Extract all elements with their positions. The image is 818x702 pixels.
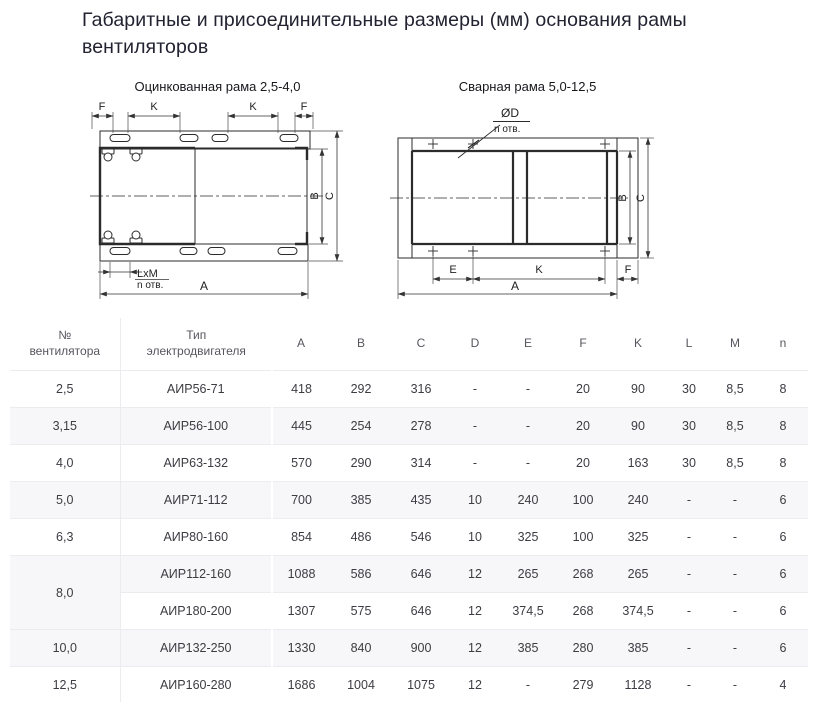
dimension-value-cell: 445 [272,408,330,445]
dimension-value-cell: 1686 [272,667,330,702]
dimension-value-cell: 12 [450,667,500,702]
bottom-flange [100,244,308,261]
fan-size-cell: 8,0 [10,556,120,630]
dimension-value-cell: 6 [758,519,808,556]
dimension-value-cell: 570 [272,445,330,482]
dimension-value-cell: 20 [556,445,610,482]
welded-frame-title: Сварная рама 5,0-12,5 [390,79,665,94]
dimension-value-cell: - [500,667,556,702]
dimension-value-cell: 12 [450,630,500,667]
dimension-value-cell: 30 [666,371,712,408]
hole-marks [428,139,610,256]
galvanized-frame-title: Оцинкованная рама 2,5-4,0 [85,79,350,94]
dimension-value-cell: 840 [330,630,392,667]
column-header: B [330,318,392,371]
motor-type-cell: АИР63-132 [120,445,272,482]
column-header: D [450,318,500,371]
dimension-value-cell: 646 [392,593,450,630]
dimension-value-cell: 1088 [272,556,330,593]
dimension-value-cell: 268 [556,593,610,630]
dimension-value-cell: 90 [610,408,666,445]
page-title: Габаритные и присоединительные размеры (… [82,7,782,61]
fan-size-cell: 3,15 [10,408,120,445]
column-header: F [556,318,610,371]
dimension-value-cell: 20 [556,371,610,408]
dimension-value-cell: 100 [556,519,610,556]
dimension-value-cell: 292 [330,371,392,408]
dimension-value-cell: 10 [450,482,500,519]
dimension-value-cell: 854 [272,519,330,556]
dim-label-f: F [625,264,632,276]
dimension-value-cell: 90 [610,371,666,408]
dimension-value-cell: 486 [330,519,392,556]
dimension-value-cell: 1004 [330,667,392,702]
welded-frame-drawing: ØD n отв. B C E K F [390,96,665,314]
slot-hole [110,248,130,255]
dimension-value-cell: 8 [758,371,808,408]
fan-size-cell: 4,0 [10,445,120,482]
dimension-value-cell: 240 [610,482,666,519]
dimension-value-cell: 385 [500,630,556,667]
motor-type-cell: АИР56-100 [120,408,272,445]
dim-label-f: F [301,101,308,113]
dim-label-a: A [511,279,519,293]
column-header: Тип электродвигателя [120,318,272,371]
dimension-value-cell: 6 [758,630,808,667]
dimension-value-cell: 163 [610,445,666,482]
top-flange [100,131,310,149]
dimension-value-cell: 374,5 [500,593,556,630]
dim-label-k: K [249,101,257,113]
dimension-value-cell: - [500,408,556,445]
dimension-value-cell: 8,5 [712,445,758,482]
table-row: 4,0АИР63-132570290314--20163308,58 [10,445,808,482]
column-header: № вентилятора [10,318,120,371]
slot-hole [180,135,198,142]
dimension-value-cell: 385 [330,482,392,519]
slot-hole [212,135,228,142]
dim-label-b: B [617,194,629,201]
dimension-value-cell: 435 [392,482,450,519]
dimension-value-cell: 279 [556,667,610,702]
dimension-value-cell: 546 [392,519,450,556]
dimension-value-cell: - [666,593,712,630]
motor-type-cell: АИР160-280 [120,667,272,702]
dimension-value-cell: - [666,630,712,667]
dimension-value-cell: 8,5 [712,408,758,445]
dimension-value-cell: 418 [272,371,330,408]
dim-label-a: A [200,279,208,293]
corner-mark [295,148,307,160]
column-header: L [666,318,712,371]
dimension-value-cell: 1307 [272,593,330,630]
table-row: 2,5АИР56-71418292316--2090308,58 [10,371,808,408]
dimension-value-cell: 265 [610,556,666,593]
dim-label-c: C [635,194,647,202]
column-header: A [272,318,330,371]
dimension-value-cell: 1128 [610,667,666,702]
dimension-value-cell: - [666,667,712,702]
slot-hole [180,248,197,255]
corner-mark [295,232,307,244]
table-row: 8,0АИР112-160108858664612265268265--6 [10,556,808,593]
dimension-value-cell: - [666,482,712,519]
dimension-value-cell: - [712,519,758,556]
dimension-value-cell: 20 [556,408,610,445]
dimension-value-cell: 314 [392,445,450,482]
dimension-value-cell: - [712,630,758,667]
dimension-value-cell: - [712,593,758,630]
dimension-value-cell: - [712,482,758,519]
dimension-value-cell: 4 [758,667,808,702]
dimension-value-cell: 254 [330,408,392,445]
frame-channels [412,151,617,244]
table-row: 10,0АИР132-250133084090012385280385--6 [10,630,808,667]
motor-type-cell: АИР56-71 [120,371,272,408]
dimension-value-cell: 575 [330,593,392,630]
dimension-value-cell: 646 [392,556,450,593]
slot-hole [278,248,297,255]
dimension-value-cell: 385 [610,630,666,667]
motor-type-cell: АИР71-112 [120,482,272,519]
dimension-value-cell: 10 [450,519,500,556]
dim-label-c: C [324,192,336,200]
table-header-row: № вентилятораТип электродвигателяABCDEFK… [10,318,808,371]
dimension-value-cell: 8 [758,408,808,445]
dim-label-n-holes: n отв. [494,124,520,135]
dimension-value-cell: 12 [450,593,500,630]
dimension-value-cell: 30 [666,408,712,445]
table-row: АИР180-200130757564612374,5268374,5--6 [10,593,808,630]
dimension-value-cell: 1075 [392,667,450,702]
column-header: n [758,318,808,371]
dimension-value-cell: 316 [392,371,450,408]
dim-label-diameter: ØD [501,106,519,120]
dimension-value-cell: - [450,445,500,482]
dimension-value-cell: - [450,408,500,445]
slot-hole [280,135,298,142]
dimensions-table: № вентилятораТип электродвигателяABCDEFK… [10,318,808,702]
motor-type-cell: АИР80-160 [120,519,272,556]
column-header: C [392,318,450,371]
dimension-value-cell: 12 [450,556,500,593]
dimension-value-cell: 280 [556,630,610,667]
dimension-value-cell: 278 [392,408,450,445]
dimension-value-cell: - [666,519,712,556]
dim-label-b: B [309,192,321,199]
dimension-lines [398,138,648,294]
dimension-value-cell: 268 [556,556,610,593]
dimension-value-cell: 325 [500,519,556,556]
dimension-value-cell: - [712,667,758,702]
dimension-value-cell: - [500,445,556,482]
motor-type-cell: АИР112-160 [120,556,272,593]
dim-label-n-holes: n отв. [137,280,163,291]
table-row: 6,3АИР80-16085448654610325100325--6 [10,519,808,556]
fan-size-cell: 12,5 [10,667,120,702]
fan-size-cell: 5,0 [10,482,120,519]
fan-size-cell: 6,3 [10,519,120,556]
dimension-value-cell: 8 [758,445,808,482]
motor-type-cell: АИР180-200 [120,593,272,630]
dimension-value-cell: 265 [500,556,556,593]
slot-hole [208,248,225,255]
dimension-value-cell: 586 [330,556,392,593]
dimension-value-cell: 6 [758,482,808,519]
galvanized-frame-drawing: F K K F B C LxM n отв. A [85,96,350,314]
dimension-lines [92,116,337,294]
page-title-line1: Габаритные и присоединительные размеры (… [82,9,687,31]
fan-size-cell: 2,5 [10,371,120,408]
column-header: E [500,318,556,371]
table-row: 12,5АИР160-28016861004107512-2791128--4 [10,667,808,702]
dimension-value-cell: 900 [392,630,450,667]
fan-size-cell: 10,0 [10,630,120,667]
table-row: 3,15АИР56-100445254278--2090308,58 [10,408,808,445]
page-title-line2: вентиляторов [82,36,208,58]
dimension-value-cell: 240 [500,482,556,519]
dimension-value-cell: - [450,371,500,408]
column-header: M [712,318,758,371]
dimension-value-cell: 6 [758,556,808,593]
table-row: 5,0АИР71-11270038543510240100240--6 [10,482,808,519]
dimension-value-cell: 290 [330,445,392,482]
dimension-value-cell: - [666,556,712,593]
column-header: K [610,318,666,371]
dimension-value-cell: - [712,556,758,593]
dimension-value-cell: 100 [556,482,610,519]
dim-label-lxm: LxM [137,268,158,280]
dim-label-k: K [535,264,543,276]
dimension-value-cell: - [500,371,556,408]
dimension-value-cell: 374,5 [610,593,666,630]
dim-label-f: F [99,101,106,113]
slot-hole [110,135,130,142]
dimension-value-cell: 1330 [272,630,330,667]
dimension-value-cell: 6 [758,593,808,630]
dimension-value-cell: 325 [610,519,666,556]
dim-label-k: K [150,101,158,113]
dimension-value-cell: 30 [666,445,712,482]
dimension-value-cell: 700 [272,482,330,519]
page: Габаритные и присоединительные размеры (… [0,0,818,702]
dim-label-e: E [449,264,456,276]
dimension-value-cell: 8,5 [712,371,758,408]
motor-type-cell: АИР132-250 [120,630,272,667]
